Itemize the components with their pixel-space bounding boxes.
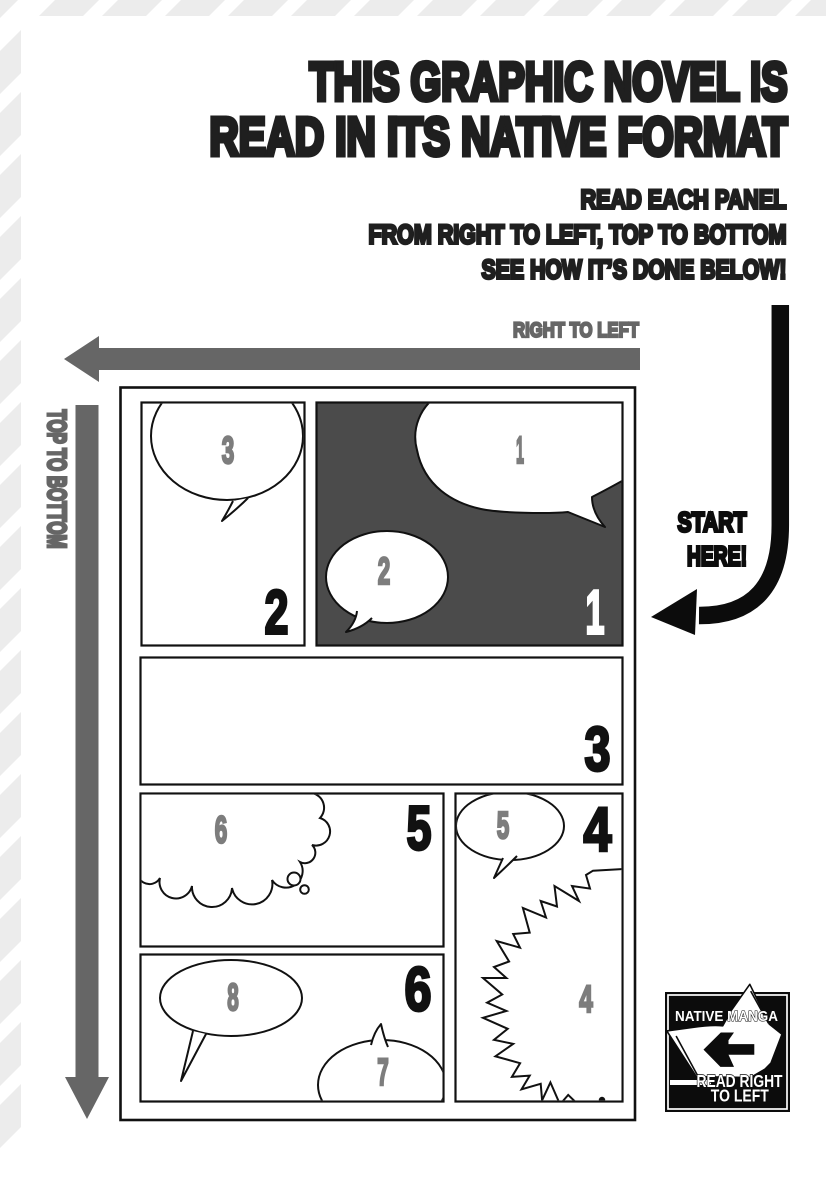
svg-text:SEE HOW IT’S DONE BELOW!: SEE HOW IT’S DONE BELOW! <box>482 255 787 285</box>
svg-text:START: START <box>678 507 747 538</box>
svg-text:6: 6 <box>215 809 228 851</box>
svg-text:READ EACH PANEL: READ EACH PANEL <box>581 185 787 215</box>
svg-text:TO LEFT: TO LEFT <box>711 1086 769 1106</box>
svg-text:4: 4 <box>584 796 612 865</box>
svg-text:1: 1 <box>586 579 605 648</box>
svg-text:HERE!: HERE! <box>687 541 747 572</box>
svg-text:RIGHT TO LEFT: RIGHT TO LEFT <box>513 319 639 342</box>
svg-text:THIS GRAPHIC NOVEL IS: THIS GRAPHIC NOVEL IS <box>310 52 788 112</box>
svg-text:8: 8 <box>227 977 239 1019</box>
svg-text:2: 2 <box>265 579 289 648</box>
svg-text:6: 6 <box>405 956 432 1025</box>
svg-text:3: 3 <box>222 430 235 472</box>
svg-text:NATIVE MANGA: NATIVE MANGA <box>675 1008 778 1025</box>
svg-text:5: 5 <box>407 795 432 864</box>
svg-text:3: 3 <box>585 716 611 785</box>
svg-text:READ IN ITS NATIVE FORMAT: READ IN ITS NATIVE FORMAT <box>210 107 788 167</box>
svg-text:2: 2 <box>378 551 391 593</box>
svg-text:4: 4 <box>579 979 593 1021</box>
svg-text:TOP TO BOTTOM: TOP TO BOTTOM <box>42 410 72 549</box>
svg-text:FROM RIGHT TO LEFT, TOP TO BOT: FROM RIGHT TO LEFT, TOP TO BOTTOM <box>369 220 787 250</box>
svg-text:5: 5 <box>497 805 510 847</box>
svg-text:7: 7 <box>377 1052 389 1094</box>
svg-text:1: 1 <box>516 430 524 472</box>
